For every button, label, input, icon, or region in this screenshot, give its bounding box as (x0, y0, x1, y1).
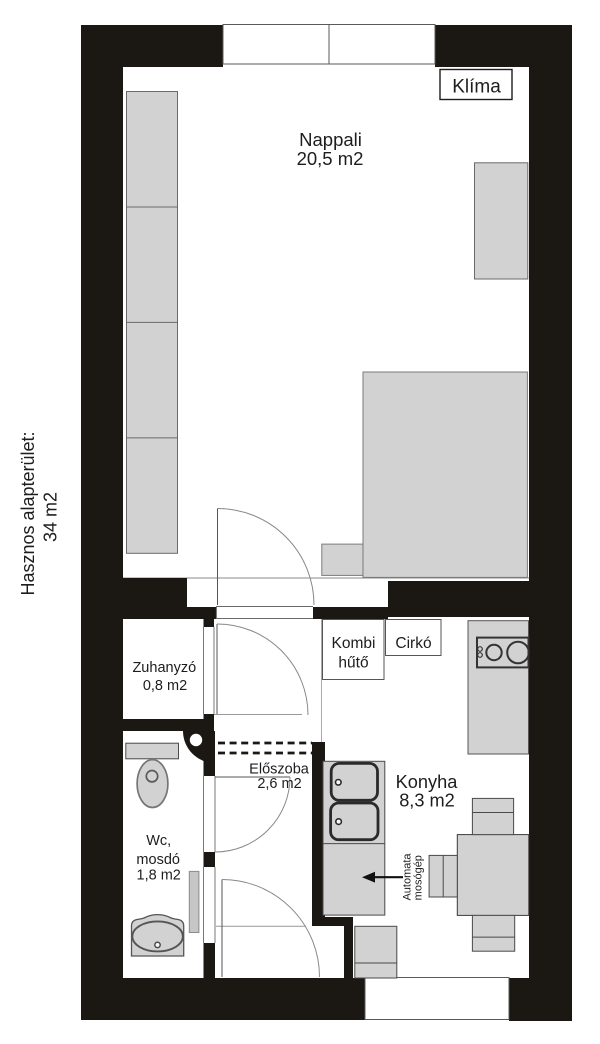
svg-text:Wc,: Wc, (146, 833, 171, 849)
svg-text:mosógép: mosógép (413, 855, 425, 900)
svg-text:20,5 m2: 20,5 m2 (297, 148, 364, 169)
svg-text:8,3 m2: 8,3 m2 (399, 790, 455, 810)
svg-text:1,8 m2: 1,8 m2 (137, 868, 181, 884)
svg-text:mosdó: mosdó (136, 852, 180, 868)
svg-text:hűtő: hűtő (338, 655, 368, 672)
svg-text:Kombi: Kombi (332, 635, 376, 652)
svg-text:Nappali: Nappali (299, 129, 362, 150)
svg-text:Automata: Automata (401, 853, 413, 901)
svg-text:Hasznos alapterület:: Hasznos alapterület: (18, 431, 38, 595)
svg-text:Cirkó: Cirkó (395, 635, 431, 652)
svg-text:34 m2: 34 m2 (41, 492, 61, 542)
svg-text:Konyha: Konyha (396, 772, 459, 792)
svg-text:Zuhanyzó: Zuhanyzó (132, 660, 196, 676)
svg-text:2,6 m2: 2,6 m2 (257, 776, 301, 792)
svg-text:Klíma: Klíma (452, 77, 501, 98)
svg-text:0,8 m2: 0,8 m2 (143, 678, 187, 694)
